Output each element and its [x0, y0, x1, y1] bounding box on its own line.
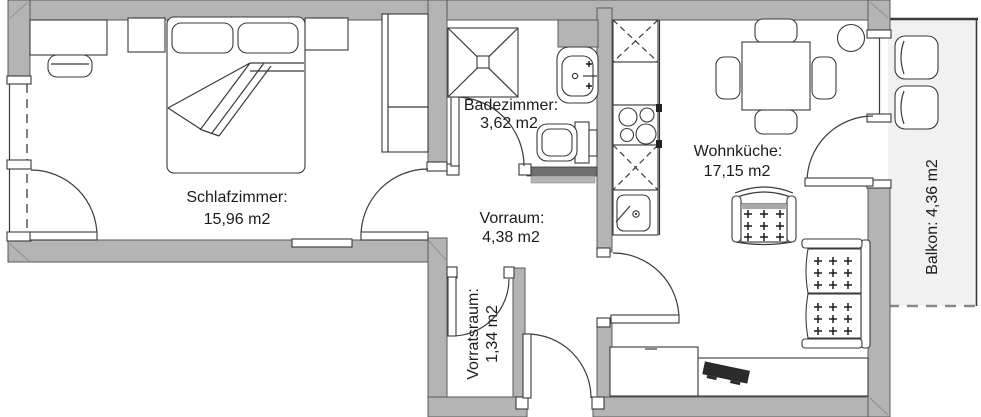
- tv-board: [698, 358, 868, 396]
- livingroom-window: [867, 30, 891, 188]
- handle: [656, 140, 662, 148]
- wall-mid-upper: [428, 0, 447, 170]
- balcony: Balkon: 4,36 m2: [886, 19, 978, 306]
- wall-left-top: [8, 0, 30, 78]
- floorplan-svg: Balkon: 4,36 m2: [0, 0, 981, 417]
- desk-chair: [48, 55, 92, 77]
- balcony-door: [805, 116, 873, 186]
- wall-bottom-left: [428, 397, 527, 417]
- livingroom-door: [597, 248, 679, 327]
- room-area-vorraum: 4,38 m2: [482, 229, 540, 246]
- bedroom-exterior-door: [30, 170, 97, 240]
- bathroom-fixtures: [448, 28, 598, 163]
- wall-bath-south: [527, 167, 597, 176]
- threshold: [292, 239, 352, 247]
- room-label-wohnkueche: Wohnküche:: [694, 143, 783, 160]
- shower: [448, 28, 518, 97]
- room-label-schlafzimmer: Schlafzimmer:: [186, 189, 287, 206]
- wall-right-bottom: [868, 184, 890, 417]
- room-area-vorratsraum: 1,34 m2: [484, 305, 501, 363]
- sofa: [802, 239, 870, 348]
- bedroom-furniture: [30, 14, 428, 173]
- bed: [167, 17, 305, 173]
- wall-mid-lower: [428, 238, 447, 417]
- entrance-door: [516, 334, 604, 409]
- room-label-vorratsraum: Vorratsraum:: [465, 288, 482, 380]
- wall-bedroom-south: [8, 240, 430, 262]
- armchair: [732, 187, 796, 245]
- plant: [838, 25, 865, 52]
- floorplan: Balkon: 4,36 m2: [0, 0, 981, 417]
- nightstand-left: [128, 18, 165, 52]
- wall-kitchen-upper: [597, 8, 612, 252]
- washbasin: [557, 47, 598, 103]
- pillow: [238, 23, 298, 53]
- chair-south: [755, 110, 797, 134]
- room-area-badezimmer: 3,62 m2: [480, 115, 538, 132]
- balcony-label: Balkon: 4,36 m2: [924, 159, 941, 275]
- balcony-chair-2: [895, 86, 938, 129]
- bedroom-window: [7, 76, 31, 241]
- handle: [656, 104, 662, 112]
- kitchen-sink: [613, 190, 658, 235]
- room-area-wohnkueche: 17,15 m2: [704, 163, 771, 180]
- wall-bottom-right: [593, 397, 890, 417]
- room-area-schlafzimmer: 15,96 m2: [204, 211, 271, 228]
- duct-shaft: [558, 20, 598, 47]
- sideboard: [610, 347, 698, 396]
- chair-north: [755, 19, 797, 43]
- wardrobe: [382, 14, 428, 152]
- bedroom-door: [361, 162, 447, 240]
- chair-west: [716, 57, 740, 99]
- wall-top: [8, 0, 890, 20]
- desk: [30, 20, 107, 55]
- chair-east: [812, 57, 836, 99]
- room-label-vorraum: Vorraum:: [480, 210, 545, 227]
- pillow: [172, 23, 233, 53]
- dining-table: [716, 19, 836, 134]
- balcony-chair-1: [895, 36, 938, 79]
- stove: [613, 105, 658, 145]
- toilet: [537, 122, 597, 163]
- counter: [613, 62, 658, 105]
- kitchen-units: [613, 20, 662, 235]
- bath-threshold: [531, 176, 595, 183]
- nightstand-right: [305, 18, 348, 50]
- room-label-badezimmer: Badezimmer:: [464, 97, 558, 114]
